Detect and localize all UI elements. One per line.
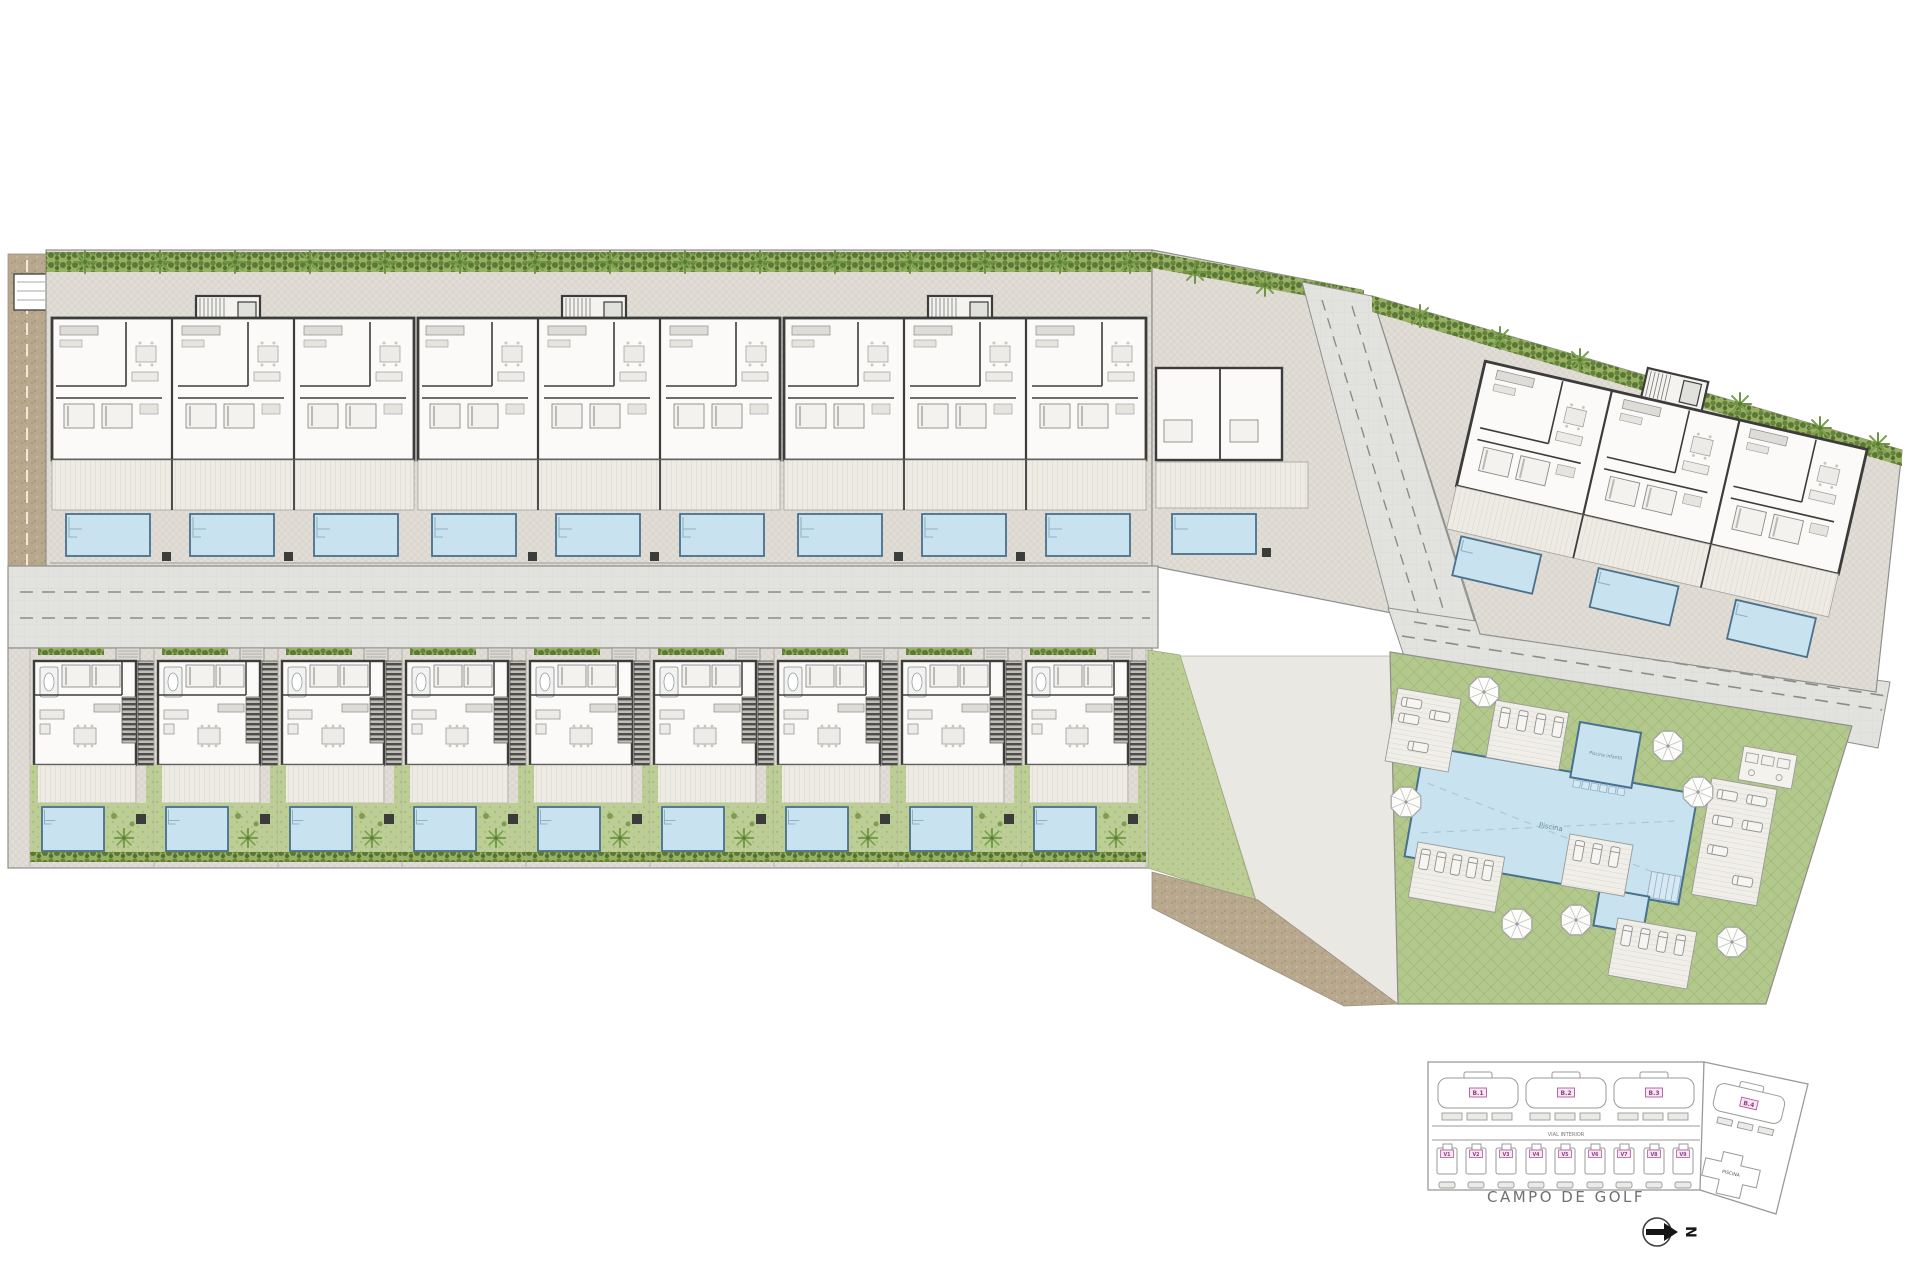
apartment-block-b1 <box>50 296 416 563</box>
villa-v2 <box>154 648 278 868</box>
villa-v6 <box>650 648 774 868</box>
svg-text:V1: V1 <box>1443 1152 1450 1158</box>
svg-text:V3: V3 <box>1502 1152 1509 1158</box>
key-plan-road-label: VIAL INTERIOR <box>1548 1132 1585 1138</box>
key-plan: B.1 B.2 B.3 VIAL INTERIOR <box>1428 1062 1808 1246</box>
key-plan-buildings-row: B.1 B.2 B.3 <box>1438 1072 1694 1120</box>
svg-text:V6: V6 <box>1591 1152 1599 1158</box>
north-arrow-shaft <box>1646 1229 1664 1235</box>
sun-deck-2 <box>1486 700 1569 770</box>
svg-text:B.1: B.1 <box>1472 1090 1483 1097</box>
north-arrow-head <box>1664 1223 1678 1241</box>
north-arrow: N <box>1643 1218 1698 1246</box>
svg-text:B.3: B.3 <box>1648 1090 1659 1097</box>
svg-text:V9: V9 <box>1679 1152 1687 1158</box>
svg-text:V7: V7 <box>1620 1152 1627 1158</box>
villa-v1 <box>30 648 154 868</box>
apartment-block-b3 <box>782 296 1148 563</box>
main-site-plan: Piscina Piscina infantil <box>8 250 1902 1006</box>
svg-text:V8: V8 <box>1650 1152 1658 1158</box>
svg-text:V5: V5 <box>1561 1152 1568 1158</box>
villa-v5 <box>526 648 650 868</box>
svg-text:V4: V4 <box>1532 1152 1540 1158</box>
site-plan-canvas: Piscina Piscina infantil <box>0 0 1920 1280</box>
communal-pool-kids: Piscina infantil <box>1569 722 1641 797</box>
sun-deck-4 <box>1561 834 1633 896</box>
villa-v3 <box>278 648 402 868</box>
villa-v7 <box>774 648 898 868</box>
svg-text:V2: V2 <box>1472 1152 1479 1158</box>
east-transition-area <box>1148 650 1398 1006</box>
campo-de-golf-label: CAMPO DE GOLF <box>1487 1188 1645 1206</box>
north-letter: N <box>1682 1226 1698 1238</box>
villa-v9 <box>1022 648 1146 868</box>
key-plan-building-label-b2: B.2 <box>1558 1088 1575 1097</box>
sun-deck-1 <box>1385 688 1461 772</box>
key-plan-building-label-b3: B.3 <box>1646 1088 1663 1097</box>
villa-v8 <box>898 648 1022 868</box>
entrance-gate <box>14 274 48 310</box>
road-vial-interior <box>8 566 1158 648</box>
key-plan-building-label-b1: B.1 <box>1470 1088 1487 1097</box>
svg-text:B.2: B.2 <box>1560 1090 1571 1097</box>
apartment-block-b2 <box>416 296 782 563</box>
site-plan-svg: Piscina Piscina infantil <box>0 0 1920 1280</box>
key-plan-villa-labels: V1 V2 V3 V4 V5 V6 V7 V8 V9 <box>1441 1150 1690 1158</box>
villa-v4 <box>402 648 526 868</box>
